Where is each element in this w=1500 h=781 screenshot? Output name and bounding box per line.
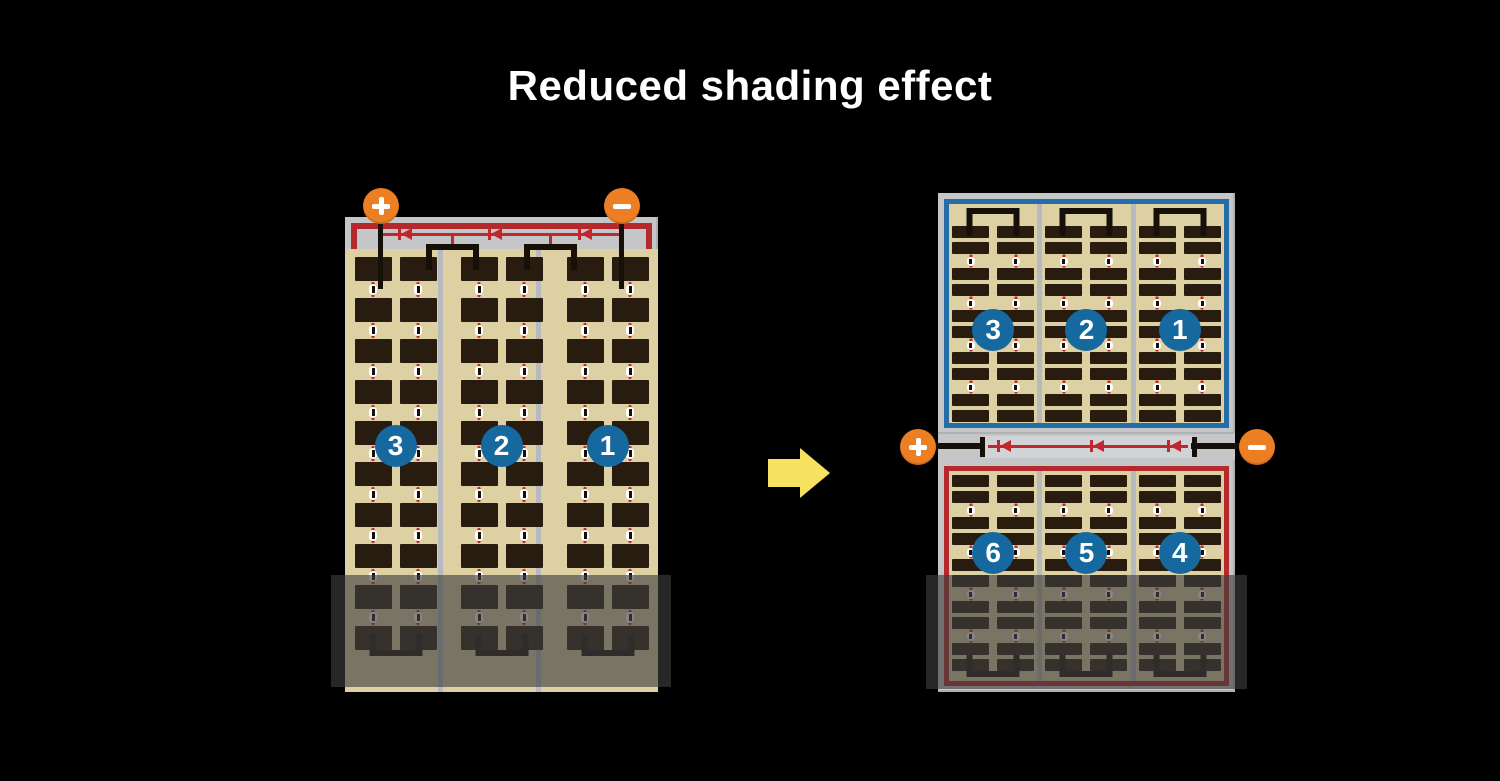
cell-connector xyxy=(414,322,422,339)
cell-connector xyxy=(369,363,377,380)
solar-cell xyxy=(952,475,989,487)
diode-icon xyxy=(1090,440,1104,452)
cell-connector xyxy=(1198,254,1206,268)
solar-cell xyxy=(952,517,989,529)
connector-row xyxy=(557,322,658,339)
solar-cell xyxy=(506,339,543,363)
cell-row xyxy=(451,380,552,404)
cell-row xyxy=(949,284,1037,296)
cell-connector xyxy=(1105,296,1113,310)
cell-connector xyxy=(1012,296,1020,310)
solar-cell xyxy=(1045,368,1082,380)
cell-row xyxy=(451,339,552,363)
solar-cell xyxy=(567,380,604,404)
cell-row xyxy=(1136,242,1224,254)
minus-icon xyxy=(604,188,640,224)
connector-row xyxy=(1042,380,1130,394)
solar-cell xyxy=(1090,410,1127,422)
solar-cell xyxy=(400,380,437,404)
solar-cell xyxy=(400,339,437,363)
cell-connector xyxy=(1153,503,1161,517)
connector-row xyxy=(451,486,552,503)
solar-cell xyxy=(1184,491,1221,503)
cell-row xyxy=(1042,410,1130,422)
solar-cell xyxy=(1045,352,1082,364)
solar-cell xyxy=(952,242,989,254)
connector-row xyxy=(345,363,446,380)
string-number-badge: 2 xyxy=(1065,309,1107,351)
cell-row xyxy=(557,503,658,527)
cell-connector xyxy=(369,486,377,503)
plus-icon xyxy=(363,188,399,224)
solar-cell xyxy=(567,462,604,486)
solar-cell xyxy=(1090,352,1127,364)
cell-row xyxy=(1042,284,1130,296)
bus-end-bar xyxy=(980,437,985,457)
connector-row xyxy=(949,380,1037,394)
cell-connector xyxy=(369,281,377,298)
cell-string-section: 3 xyxy=(949,226,1037,422)
solar-cell xyxy=(355,298,392,322)
cell-row xyxy=(1136,268,1224,280)
cell-connector xyxy=(475,363,483,380)
solar-cell xyxy=(612,462,649,486)
solar-cell xyxy=(1139,368,1176,380)
cell-connector xyxy=(967,338,975,352)
string-number-badge: 3 xyxy=(375,425,417,467)
solar-cell xyxy=(612,257,649,281)
solar-cell xyxy=(952,284,989,296)
cell-row xyxy=(1042,268,1130,280)
connector-row xyxy=(1042,296,1130,310)
connector-row xyxy=(345,281,446,298)
solar-cell xyxy=(461,503,498,527)
connector-row xyxy=(451,404,552,421)
top-bus-bar xyxy=(1060,208,1113,236)
string-number-badge: 4 xyxy=(1159,532,1201,574)
solar-cell xyxy=(1184,410,1221,422)
cell-row xyxy=(1136,352,1224,364)
solar-cell xyxy=(1184,368,1221,380)
solar-cell xyxy=(612,298,649,322)
cell-connector xyxy=(1153,296,1161,310)
cell-connector xyxy=(1012,503,1020,517)
cell-connector xyxy=(626,404,634,421)
cell-connector xyxy=(1153,338,1161,352)
solar-cell xyxy=(1045,491,1082,503)
cell-row xyxy=(1042,368,1130,380)
cell-row xyxy=(557,380,658,404)
solar-cell xyxy=(400,503,437,527)
solar-cell xyxy=(952,368,989,380)
solar-cell xyxy=(506,380,543,404)
solar-cell xyxy=(1184,475,1221,487)
infographic-stage: Reduced shading effect 321 xyxy=(0,0,1500,781)
solar-cell xyxy=(400,544,437,568)
solar-cell xyxy=(1184,352,1221,364)
solar-cell xyxy=(1139,284,1176,296)
cell-row xyxy=(1136,394,1224,406)
solar-cell xyxy=(461,298,498,322)
cell-row xyxy=(1042,475,1130,487)
solar-cell xyxy=(1045,268,1082,280)
top-bus-bar xyxy=(967,208,1020,236)
connector-row xyxy=(949,254,1037,268)
cell-connector xyxy=(626,322,634,339)
solar-cell xyxy=(612,339,649,363)
connector-row xyxy=(451,363,552,380)
solar-cell xyxy=(1045,284,1082,296)
solar-cell xyxy=(1139,410,1176,422)
connector-row xyxy=(345,322,446,339)
cell-connector xyxy=(1153,380,1161,394)
cell-connector xyxy=(369,527,377,544)
string-number-badge: 6 xyxy=(972,532,1014,574)
solar-cell xyxy=(1184,242,1221,254)
solar-cell xyxy=(997,517,1034,529)
cell-connector xyxy=(1012,338,1020,352)
solar-cell xyxy=(1090,475,1127,487)
solar-cell xyxy=(506,462,543,486)
arrow-head xyxy=(800,448,830,498)
diode-icon xyxy=(1167,440,1181,452)
string-number-badge: 3 xyxy=(972,309,1014,351)
cell-connector xyxy=(581,281,589,298)
cell-connector xyxy=(1012,380,1020,394)
solar-cell xyxy=(1045,410,1082,422)
solar-cell xyxy=(1090,284,1127,296)
cell-connector xyxy=(1012,254,1020,268)
connector-row xyxy=(1042,503,1130,517)
cell-connector xyxy=(475,486,483,503)
cell-area: 321 xyxy=(949,204,1224,423)
cell-connector xyxy=(414,527,422,544)
cell-connector xyxy=(475,527,483,544)
circuit-blue-border: 321 xyxy=(944,199,1229,428)
solar-cell xyxy=(1090,491,1127,503)
cell-row xyxy=(557,544,658,568)
cell-connector xyxy=(581,322,589,339)
cell-connector xyxy=(1105,254,1113,268)
solar-cell xyxy=(952,352,989,364)
shading-overlay xyxy=(926,575,1247,689)
junction-strip xyxy=(938,434,1235,460)
cell-connector xyxy=(581,486,589,503)
cell-connector xyxy=(1198,296,1206,310)
solar-cell xyxy=(567,503,604,527)
top-bus-bar xyxy=(524,244,577,270)
cell-connector xyxy=(1060,296,1068,310)
connector-row xyxy=(345,527,446,544)
cell-strings: 321 xyxy=(949,226,1224,422)
cell-connector xyxy=(626,363,634,380)
bypass-diode-line xyxy=(988,445,1188,448)
cell-row xyxy=(1136,284,1224,296)
solar-cell xyxy=(506,298,543,322)
cell-row xyxy=(949,352,1037,364)
solar-cell xyxy=(1090,268,1127,280)
solar-cell xyxy=(952,268,989,280)
solar-cell xyxy=(997,368,1034,380)
diode-icon xyxy=(997,440,1011,452)
connector-row xyxy=(557,527,658,544)
cell-connector xyxy=(1198,503,1206,517)
cell-row xyxy=(949,475,1037,487)
solar-cell xyxy=(997,242,1034,254)
cell-row xyxy=(949,517,1037,529)
solar-cell xyxy=(461,544,498,568)
connector-row xyxy=(451,281,552,298)
connector-row xyxy=(949,503,1037,517)
bus-end-bar xyxy=(1192,437,1197,457)
cell-connector xyxy=(1105,503,1113,517)
cell-connector xyxy=(1198,338,1206,352)
cell-row xyxy=(557,339,658,363)
cell-row xyxy=(345,503,446,527)
connector-row xyxy=(345,404,446,421)
solar-cell xyxy=(355,544,392,568)
top-bus-bar xyxy=(426,244,479,270)
solar-cell xyxy=(952,491,989,503)
cell-connector xyxy=(1153,254,1161,268)
cell-connector xyxy=(1105,380,1113,394)
cell-row xyxy=(345,380,446,404)
cell-row xyxy=(1042,517,1130,529)
connector-row xyxy=(451,322,552,339)
string-number-badge: 2 xyxy=(481,425,523,467)
cell-connector xyxy=(520,363,528,380)
connector-row xyxy=(1136,296,1224,310)
cell-connector xyxy=(1060,380,1068,394)
solar-cell xyxy=(400,298,437,322)
positive-terminal xyxy=(900,429,936,465)
cell-row xyxy=(557,298,658,322)
string-number-badge: 1 xyxy=(587,425,629,467)
cell-row xyxy=(949,491,1037,503)
transform-arrow-icon xyxy=(768,448,830,498)
cell-row xyxy=(949,268,1037,280)
cell-connector xyxy=(1198,380,1206,394)
solar-cell xyxy=(506,503,543,527)
cell-connector xyxy=(967,296,975,310)
cell-row xyxy=(1042,242,1130,254)
arrow-body xyxy=(768,459,800,487)
half-cell-panel-top: 321 xyxy=(938,193,1235,434)
solar-cell xyxy=(1139,394,1176,406)
cell-connector xyxy=(414,363,422,380)
solar-cell xyxy=(997,475,1034,487)
cell-connector xyxy=(520,281,528,298)
cell-connector xyxy=(626,486,634,503)
cell-connector xyxy=(581,527,589,544)
shading-overlay xyxy=(331,575,671,687)
solar-cell xyxy=(1045,517,1082,529)
cell-connector xyxy=(581,404,589,421)
cell-connector xyxy=(1060,503,1068,517)
solar-cell xyxy=(1045,394,1082,406)
cell-connector xyxy=(475,322,483,339)
string-number-badge: 5 xyxy=(1065,532,1107,574)
solar-cell xyxy=(461,339,498,363)
solar-cell xyxy=(997,394,1034,406)
solar-cell xyxy=(1139,475,1176,487)
cell-connector xyxy=(520,404,528,421)
solar-cell xyxy=(952,394,989,406)
connector-row xyxy=(1136,503,1224,517)
diode-icon xyxy=(488,228,502,240)
cell-connector xyxy=(581,363,589,380)
negative-terminal xyxy=(604,188,640,224)
solar-cell xyxy=(1090,394,1127,406)
string-number-badge: 1 xyxy=(1159,309,1201,351)
plus-icon xyxy=(900,429,936,465)
solar-cell xyxy=(355,462,392,486)
solar-cell xyxy=(997,268,1034,280)
cell-row xyxy=(345,298,446,322)
cell-connector xyxy=(369,404,377,421)
connector-row xyxy=(557,281,658,298)
solar-cell xyxy=(1090,368,1127,380)
cell-connector xyxy=(967,380,975,394)
cell-connector xyxy=(1060,338,1068,352)
cell-row xyxy=(1042,394,1130,406)
connector-row xyxy=(557,363,658,380)
cell-row xyxy=(949,242,1037,254)
solar-cell xyxy=(1184,268,1221,280)
cell-connector xyxy=(414,281,422,298)
cell-connector xyxy=(475,404,483,421)
cell-string-section: 1 xyxy=(1136,226,1224,422)
cell-row xyxy=(345,339,446,363)
connector-row xyxy=(345,486,446,503)
connector-row xyxy=(451,527,552,544)
solar-cell xyxy=(355,503,392,527)
connector-row xyxy=(949,296,1037,310)
cell-row xyxy=(1136,475,1224,487)
diode-icon xyxy=(578,228,592,240)
top-bus-bar xyxy=(1153,208,1206,236)
solar-cell xyxy=(1184,394,1221,406)
cell-row xyxy=(1136,368,1224,380)
cell-row xyxy=(1136,517,1224,529)
bypass-diode-line xyxy=(381,233,622,236)
solar-cell xyxy=(567,544,604,568)
cell-connector xyxy=(475,281,483,298)
cell-string-section: 2 xyxy=(1042,226,1130,422)
solar-cell xyxy=(355,380,392,404)
solar-cell xyxy=(1139,352,1176,364)
solar-cell xyxy=(1090,517,1127,529)
cell-connector xyxy=(1105,338,1113,352)
cell-connector xyxy=(626,281,634,298)
solar-cell xyxy=(506,544,543,568)
cell-connector xyxy=(414,404,422,421)
solar-cell xyxy=(355,257,392,281)
solar-cell xyxy=(400,462,437,486)
cell-row xyxy=(451,544,552,568)
connector-row xyxy=(1136,380,1224,394)
cell-connector xyxy=(967,254,975,268)
cell-row xyxy=(451,503,552,527)
cell-connector xyxy=(626,527,634,544)
solar-cell xyxy=(997,284,1034,296)
negative-terminal xyxy=(1239,429,1275,465)
cell-row xyxy=(949,368,1037,380)
cell-row xyxy=(1042,352,1130,364)
cell-row xyxy=(949,410,1037,422)
cell-connector xyxy=(967,503,975,517)
cell-connector xyxy=(520,486,528,503)
solar-cell xyxy=(1045,242,1082,254)
solar-cell xyxy=(1184,284,1221,296)
cell-connector xyxy=(414,486,422,503)
solar-cell xyxy=(997,491,1034,503)
solar-cell xyxy=(461,380,498,404)
cell-connector xyxy=(520,322,528,339)
cell-row xyxy=(345,544,446,568)
cell-connector xyxy=(1060,254,1068,268)
solar-cell xyxy=(612,380,649,404)
solar-cell xyxy=(1045,475,1082,487)
cell-connector xyxy=(369,322,377,339)
solar-cell xyxy=(567,339,604,363)
solar-cell xyxy=(1139,517,1176,529)
connector-row xyxy=(557,404,658,421)
solar-cell xyxy=(997,410,1034,422)
solar-cell xyxy=(612,503,649,527)
cell-row xyxy=(1136,491,1224,503)
connector-row xyxy=(1042,254,1130,268)
diode-icon xyxy=(398,228,412,240)
solar-cell xyxy=(1184,517,1221,529)
cell-connector xyxy=(520,527,528,544)
cell-row xyxy=(949,394,1037,406)
solar-cell xyxy=(1139,242,1176,254)
solar-cell xyxy=(1139,491,1176,503)
solar-cell xyxy=(952,410,989,422)
connector-row xyxy=(557,486,658,503)
cell-row xyxy=(1136,410,1224,422)
minus-icon xyxy=(1239,429,1275,465)
page-title: Reduced shading effect xyxy=(0,62,1500,110)
cell-row xyxy=(451,298,552,322)
solar-cell xyxy=(461,462,498,486)
solar-cell xyxy=(1139,268,1176,280)
cell-row xyxy=(1042,491,1130,503)
connector-row xyxy=(1136,254,1224,268)
solar-cell xyxy=(355,339,392,363)
positive-terminal xyxy=(363,188,399,224)
solar-cell xyxy=(1090,242,1127,254)
solar-cell xyxy=(997,352,1034,364)
solar-cell xyxy=(567,298,604,322)
solar-cell xyxy=(612,544,649,568)
